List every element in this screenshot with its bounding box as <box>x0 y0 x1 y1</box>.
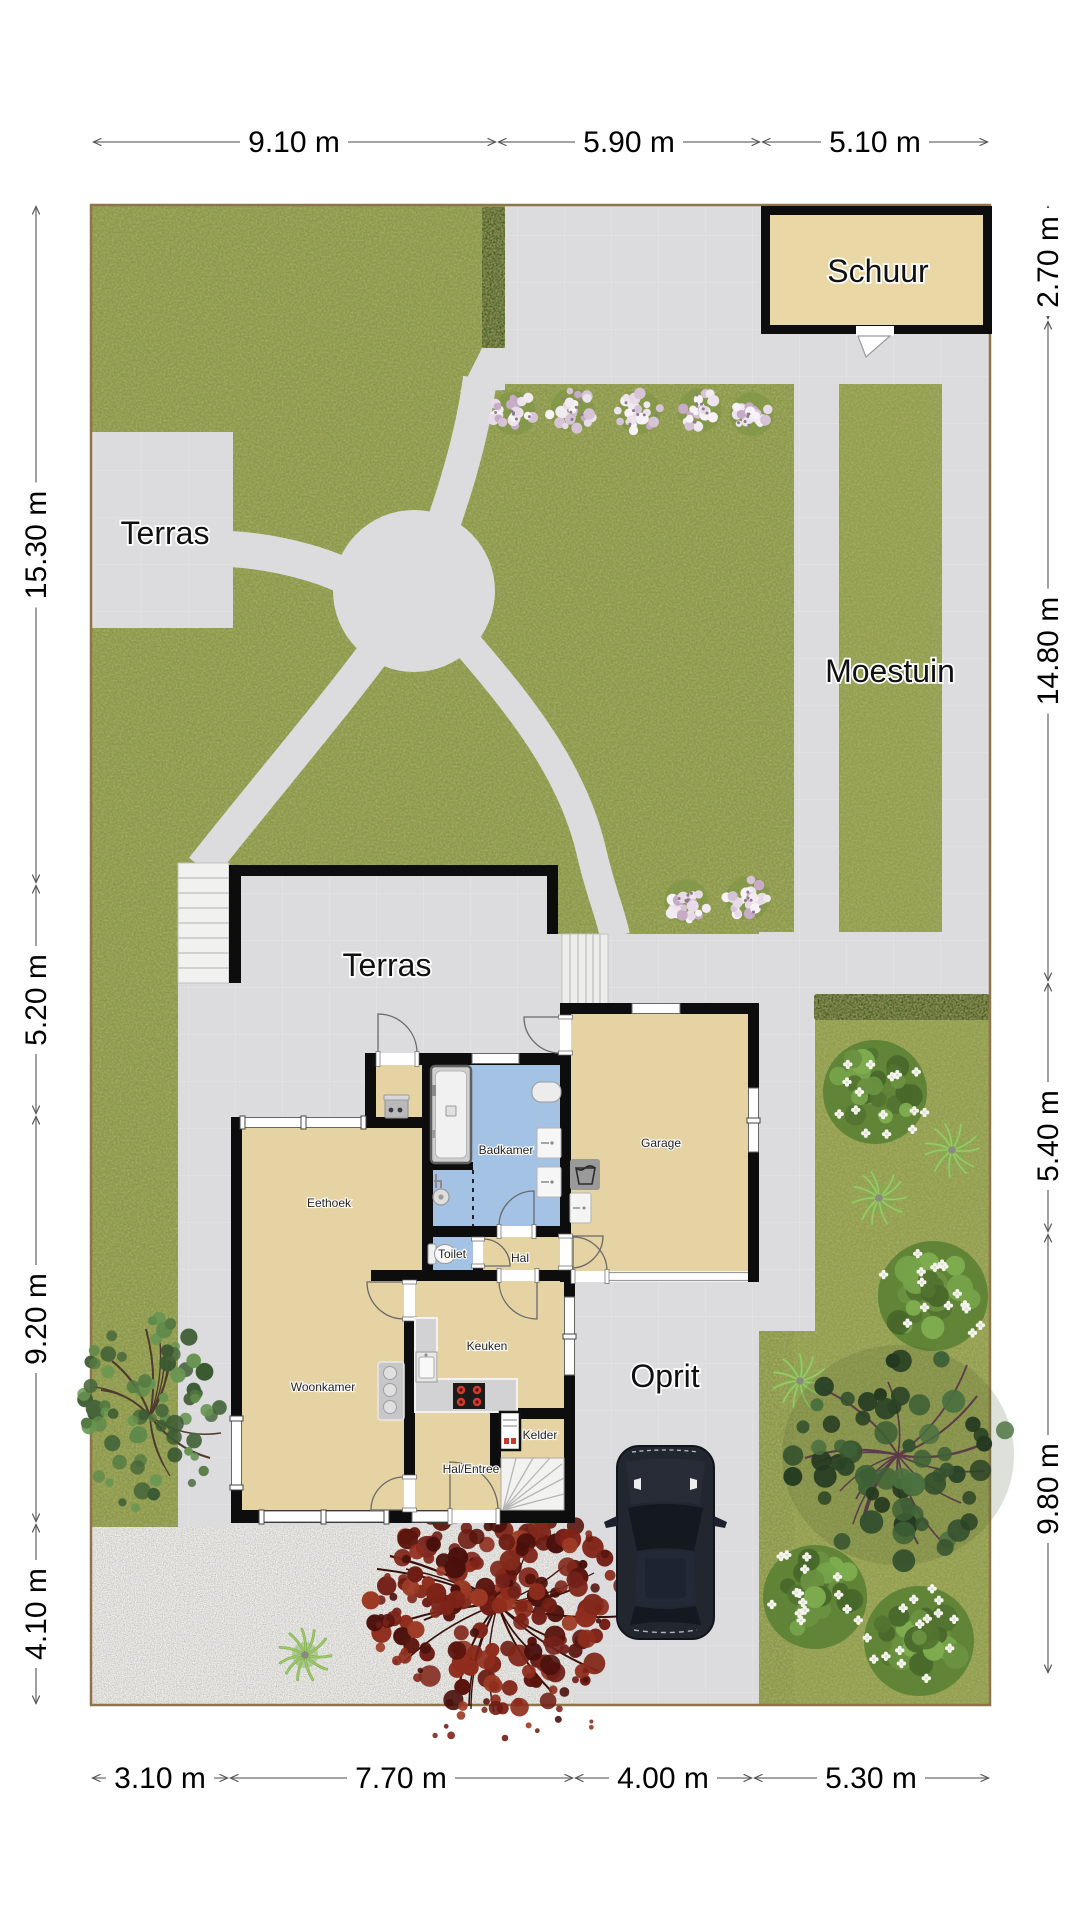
svg-text:Oprit: Oprit <box>630 1358 699 1394</box>
svg-text:3.10 m: 3.10 m <box>114 1762 206 1795</box>
svg-text:Badkamer: Badkamer <box>479 1143 534 1157</box>
svg-text:4.10 m: 4.10 m <box>20 1568 53 1660</box>
svg-text:Eethoek: Eethoek <box>307 1196 352 1210</box>
svg-text:5.90 m: 5.90 m <box>583 126 675 159</box>
svg-text:2.70 m: 2.70 m <box>1032 216 1065 308</box>
svg-text:9.20 m: 9.20 m <box>20 1273 53 1365</box>
svg-text:5.10 m: 5.10 m <box>829 126 921 159</box>
svg-text:Kelder: Kelder <box>523 1428 558 1442</box>
svg-text:9.10 m: 9.10 m <box>248 126 340 159</box>
svg-text:15.30 m: 15.30 m <box>20 491 53 599</box>
svg-text:Terras: Terras <box>343 947 432 983</box>
svg-text:4.00 m: 4.00 m <box>617 1762 709 1795</box>
svg-text:Hal/Entree: Hal/Entree <box>443 1462 500 1476</box>
svg-text:Schuur: Schuur <box>827 253 929 289</box>
svg-text:5.20 m: 5.20 m <box>20 954 53 1046</box>
svg-text:Toilet: Toilet <box>438 1247 467 1261</box>
svg-text:5.40 m: 5.40 m <box>1032 1090 1065 1182</box>
svg-text:Woonkamer: Woonkamer <box>291 1380 355 1394</box>
svg-text:9.80 m: 9.80 m <box>1032 1443 1065 1535</box>
svg-text:Moestuin: Moestuin <box>825 653 955 689</box>
svg-text:Keuken: Keuken <box>467 1339 508 1353</box>
svg-text:Garage: Garage <box>641 1136 681 1150</box>
svg-text:5.30 m: 5.30 m <box>825 1762 917 1795</box>
svg-text:Terras: Terras <box>121 515 210 551</box>
svg-text:Hal: Hal <box>511 1251 529 1265</box>
svg-text:7.70 m: 7.70 m <box>355 1762 447 1795</box>
svg-text:14.80 m: 14.80 m <box>1032 597 1065 705</box>
